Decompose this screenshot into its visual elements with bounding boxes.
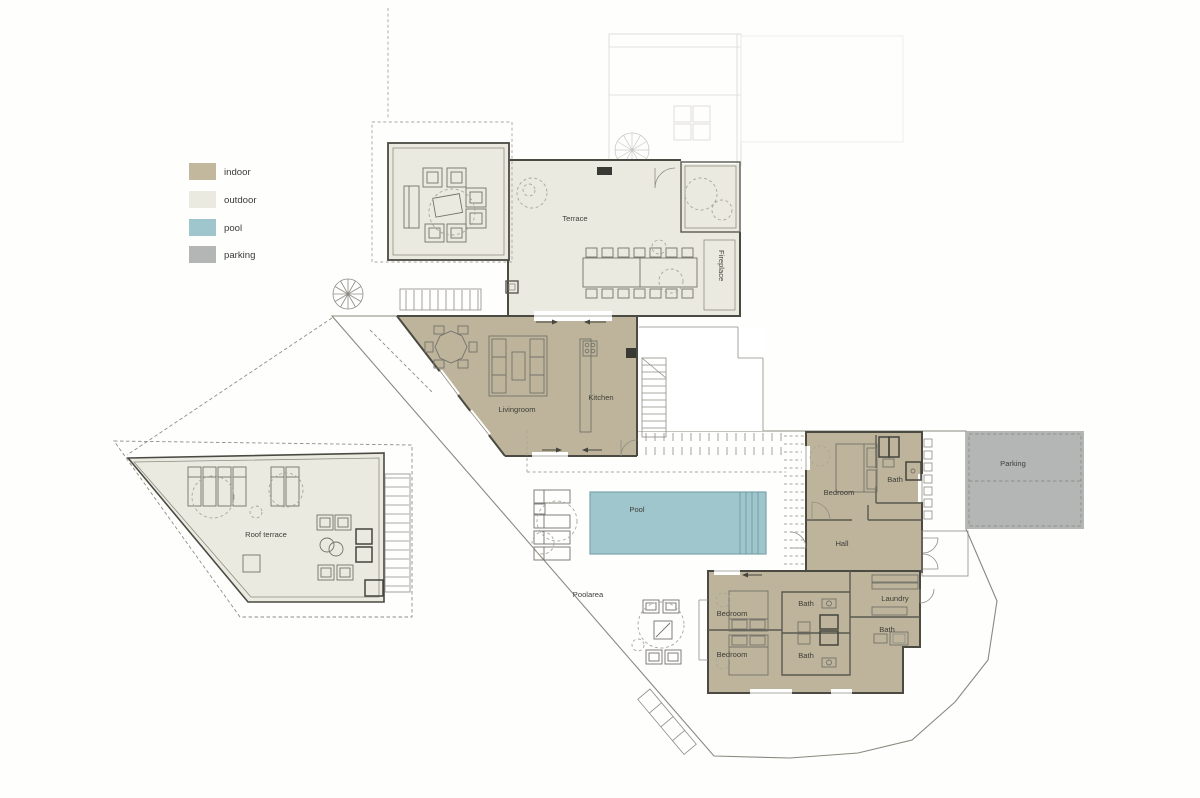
plant-circle <box>632 639 644 651</box>
legend-swatch-outdoor <box>189 191 216 208</box>
roof-stair <box>385 474 410 592</box>
legend: indoor outdoor pool parking <box>189 163 257 263</box>
floor-plan-page: Fireplace Terrace <box>0 0 1200 798</box>
bedroom-upper-label: Bedroom <box>824 488 855 497</box>
pool-loungers <box>532 490 577 560</box>
legend-swatch-indoor <box>189 163 216 180</box>
upper-outline-lines <box>609 34 741 166</box>
bath-center-bottom-label: Bath <box>798 651 814 660</box>
upper-outline-rect <box>609 34 741 166</box>
right-wing: Bedroom Bath Hall <box>790 432 968 576</box>
bedroom-b-label: Bedroom <box>717 650 748 659</box>
area-parking <box>966 431 1084 529</box>
terrace-label: Terrace <box>562 214 587 223</box>
side-steps-hatch <box>784 436 804 564</box>
garden-furniture <box>632 600 684 664</box>
legend-label-pool: pool <box>224 223 242 234</box>
legend-label-outdoor: outdoor <box>224 195 257 206</box>
hall-label: Hall <box>835 539 848 548</box>
floor-plan-drawing: Fireplace Terrace <box>0 0 1200 798</box>
plant-circle <box>537 501 577 541</box>
livingroom-label: Livingroom <box>498 405 535 414</box>
pool-label: Pool <box>629 505 645 514</box>
bath-upper-label: Bath <box>887 475 903 484</box>
fireplace-label: Fireplace <box>717 250 726 281</box>
bedroom-a-label: Bedroom <box>717 609 748 618</box>
wall-bump <box>699 600 708 660</box>
bath-center-top-label: Bath <box>798 599 814 608</box>
upper-outline-ext <box>741 36 903 142</box>
poolarea-label: Poolarea <box>573 590 604 599</box>
parking: Parking <box>966 431 1084 529</box>
ladder-treads <box>406 290 478 310</box>
bottom-block: Bedroom Bedroom Bath Bath Laundry Bath <box>699 567 934 697</box>
legend-label-parking: parking <box>224 250 255 261</box>
roof-terrace: Roof terrace <box>114 441 412 617</box>
legend-swatch-parking <box>189 246 216 263</box>
ladder-stair <box>400 289 481 310</box>
area-terrace <box>508 160 740 317</box>
laundry-label: Laundry <box>881 594 909 603</box>
exterior-stairs <box>333 279 481 310</box>
parking-label: Parking <box>1000 459 1026 468</box>
wall-pier <box>626 348 636 358</box>
legend-swatch-pool <box>189 219 216 236</box>
pool: Pool <box>590 492 766 554</box>
lounge-room <box>372 122 512 262</box>
spiral-stair-icon <box>333 279 363 309</box>
roof-stair-treads <box>385 478 409 586</box>
entrance-door-arcs <box>923 538 938 569</box>
roof-terrace-label: Roof terrace <box>245 530 287 539</box>
terrace: Fireplace Terrace <box>506 160 740 317</box>
door-arc <box>920 589 934 603</box>
upper-loungers <box>674 106 710 140</box>
bath-right-label: Bath <box>879 625 895 634</box>
wall-pier <box>597 167 612 175</box>
projection-line-a <box>127 318 332 455</box>
boundary-ramp <box>638 689 697 754</box>
plant-circle <box>638 602 684 648</box>
kitchen-label: Kitchen <box>588 393 613 402</box>
legend-label-indoor: indoor <box>224 167 251 178</box>
